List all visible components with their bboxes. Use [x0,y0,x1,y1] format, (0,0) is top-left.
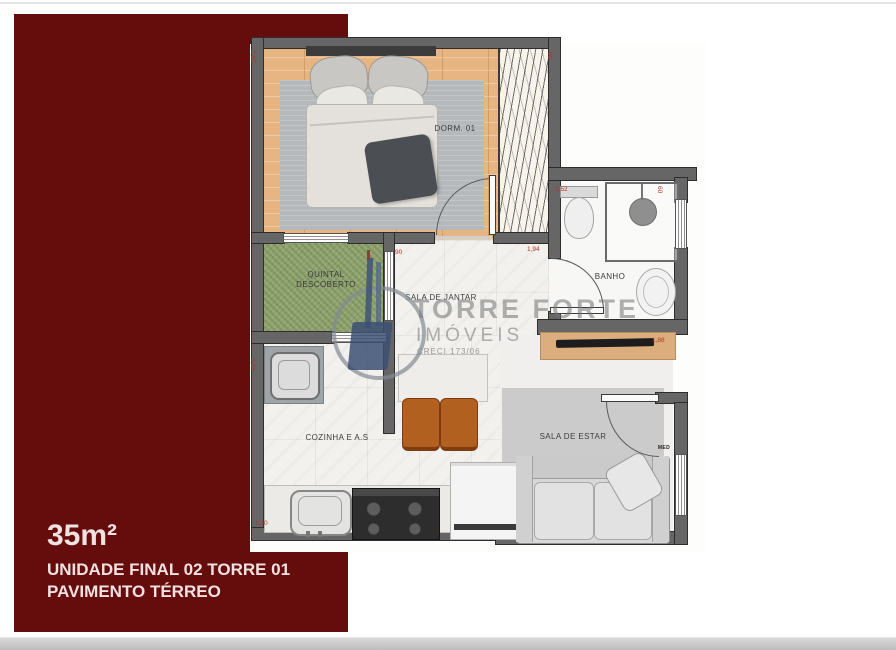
dimension-label: 90 [395,249,402,256]
bath-door-leaf [551,308,603,313]
dimension-label: 60 [656,186,663,193]
sofa-cushion [534,482,594,540]
yard-label-line1: QUINTAL [308,270,345,279]
bedroom-door-threshold [436,236,492,239]
toilet-bowl-icon [564,197,594,239]
bath-label: BANHO [580,272,640,281]
dimension-label: 1,30 [255,520,268,527]
sofa-armrest [652,456,669,542]
kitchen-sink-tap [306,531,310,537]
dining-label: SALA DE JANTAR [396,293,486,302]
bed-blanket [364,133,439,205]
yard-top-window [284,234,348,242]
wall-left [252,38,263,538]
dimension-label: 1,88 [652,337,665,344]
tv-icon [556,338,654,348]
dining-chair [440,398,478,451]
laundry-tub-inner [278,360,310,390]
yard-bottom-window [332,333,386,342]
bedroom-label: DORM. 01 [425,124,485,133]
dining-chair [402,398,440,451]
dimension-label: 1,52 [555,186,568,193]
wall-entry-stub [656,393,687,403]
yard-right-window [385,252,393,320]
entry-marker-label: MED [652,445,676,451]
dimension-label: 2,62 [249,50,256,63]
wall-bedroom-bottom-a [252,233,284,243]
dimension-label: 60 [546,52,553,59]
sofa-armrest [516,456,533,542]
shower-head-icon [629,198,657,226]
yard-label: QUINTAL DESCOBERTO [286,270,366,290]
wardrobe-hatch [498,48,551,236]
shower-pipe [641,184,643,200]
hall-floor [392,240,552,340]
stove-icon [352,488,440,540]
entry-door-leaf [602,395,658,401]
kitchen-label: COZINHA E A.S [292,433,382,442]
washing-machine-door [454,524,516,530]
wall-bedroom-right-upper [549,38,560,258]
dining-table [398,354,488,402]
yard-label-line2: DESCOBERTO [296,280,356,289]
bath-window [676,200,686,248]
floor-plan-advert: 35m² UNIDADE FINAL 02 TORRE 01 PAVIMENTO… [0,0,896,650]
dimension-label: 1,94 [527,246,540,253]
top-hairline [0,2,896,4]
bed-headboard [306,46,436,56]
wall-yard-bottom [252,332,334,343]
kitchen-sink-bowl [298,496,342,526]
floor-label: PAVIMENTO TÉRREO [47,582,221,602]
wall-bath-top [549,168,696,180]
area-label: 35m² [47,519,117,553]
kitchen-sink-tap [318,531,322,537]
bottom-strip [0,637,896,650]
living-label: SALA DE ESTAR [528,432,618,441]
dimension-label: 3,13 [249,358,256,371]
bedroom-door-leaf [490,176,495,234]
washbasin-inner [643,276,669,308]
entry-sidelight-window [676,455,686,515]
unit-label: UNIDADE FINAL 02 TORRE 01 [47,560,290,580]
